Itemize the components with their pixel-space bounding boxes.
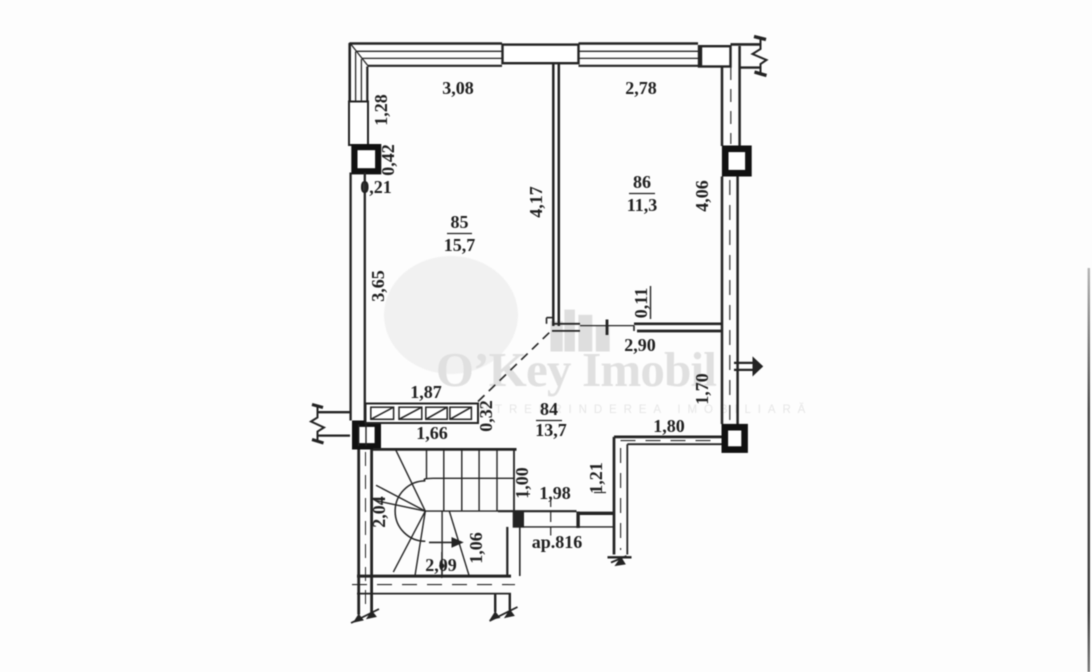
svg-text:0,11: 0,11 — [631, 288, 651, 319]
svg-text:1,87: 1,87 — [410, 382, 442, 402]
svg-text:1,21: 1,21 — [586, 462, 606, 494]
svg-text:0,21: 0,21 — [360, 177, 392, 197]
svg-text:2,04: 2,04 — [369, 496, 389, 528]
svg-text:0,32: 0,32 — [476, 400, 496, 432]
svg-text:3,65: 3,65 — [368, 270, 388, 302]
svg-text:1,28: 1,28 — [371, 94, 391, 126]
svg-text:ap.816: ap.816 — [532, 532, 583, 552]
svg-text:2,09: 2,09 — [425, 555, 457, 575]
svg-text:86: 86 — [633, 172, 651, 192]
svg-text:O’Key Imobil: O’Key Imobil — [436, 342, 716, 397]
svg-text:3,08: 3,08 — [442, 78, 474, 98]
svg-text:1,80: 1,80 — [653, 416, 685, 436]
svg-text:1,98: 1,98 — [539, 483, 571, 503]
svg-text:2,90: 2,90 — [624, 335, 656, 355]
svg-text:11,3: 11,3 — [627, 195, 658, 215]
svg-text:1,00: 1,00 — [512, 467, 532, 499]
svg-text:4,17: 4,17 — [526, 186, 546, 218]
svg-text:85: 85 — [451, 212, 469, 232]
svg-text:1,70: 1,70 — [692, 373, 712, 405]
svg-text:ÎNTREPRINDEREA IMOBILIARĂ: ÎNTREPRINDEREA IMOBILIARĂ — [469, 403, 812, 416]
svg-text:4,06: 4,06 — [692, 180, 712, 212]
svg-text:0,42: 0,42 — [378, 144, 398, 176]
svg-text:1,66: 1,66 — [416, 423, 448, 443]
svg-text:1,06: 1,06 — [466, 532, 486, 564]
svg-text:15,7: 15,7 — [444, 235, 476, 255]
svg-text:2,78: 2,78 — [625, 78, 657, 98]
svg-text:13,7: 13,7 — [535, 420, 567, 440]
svg-text:84: 84 — [540, 399, 558, 419]
